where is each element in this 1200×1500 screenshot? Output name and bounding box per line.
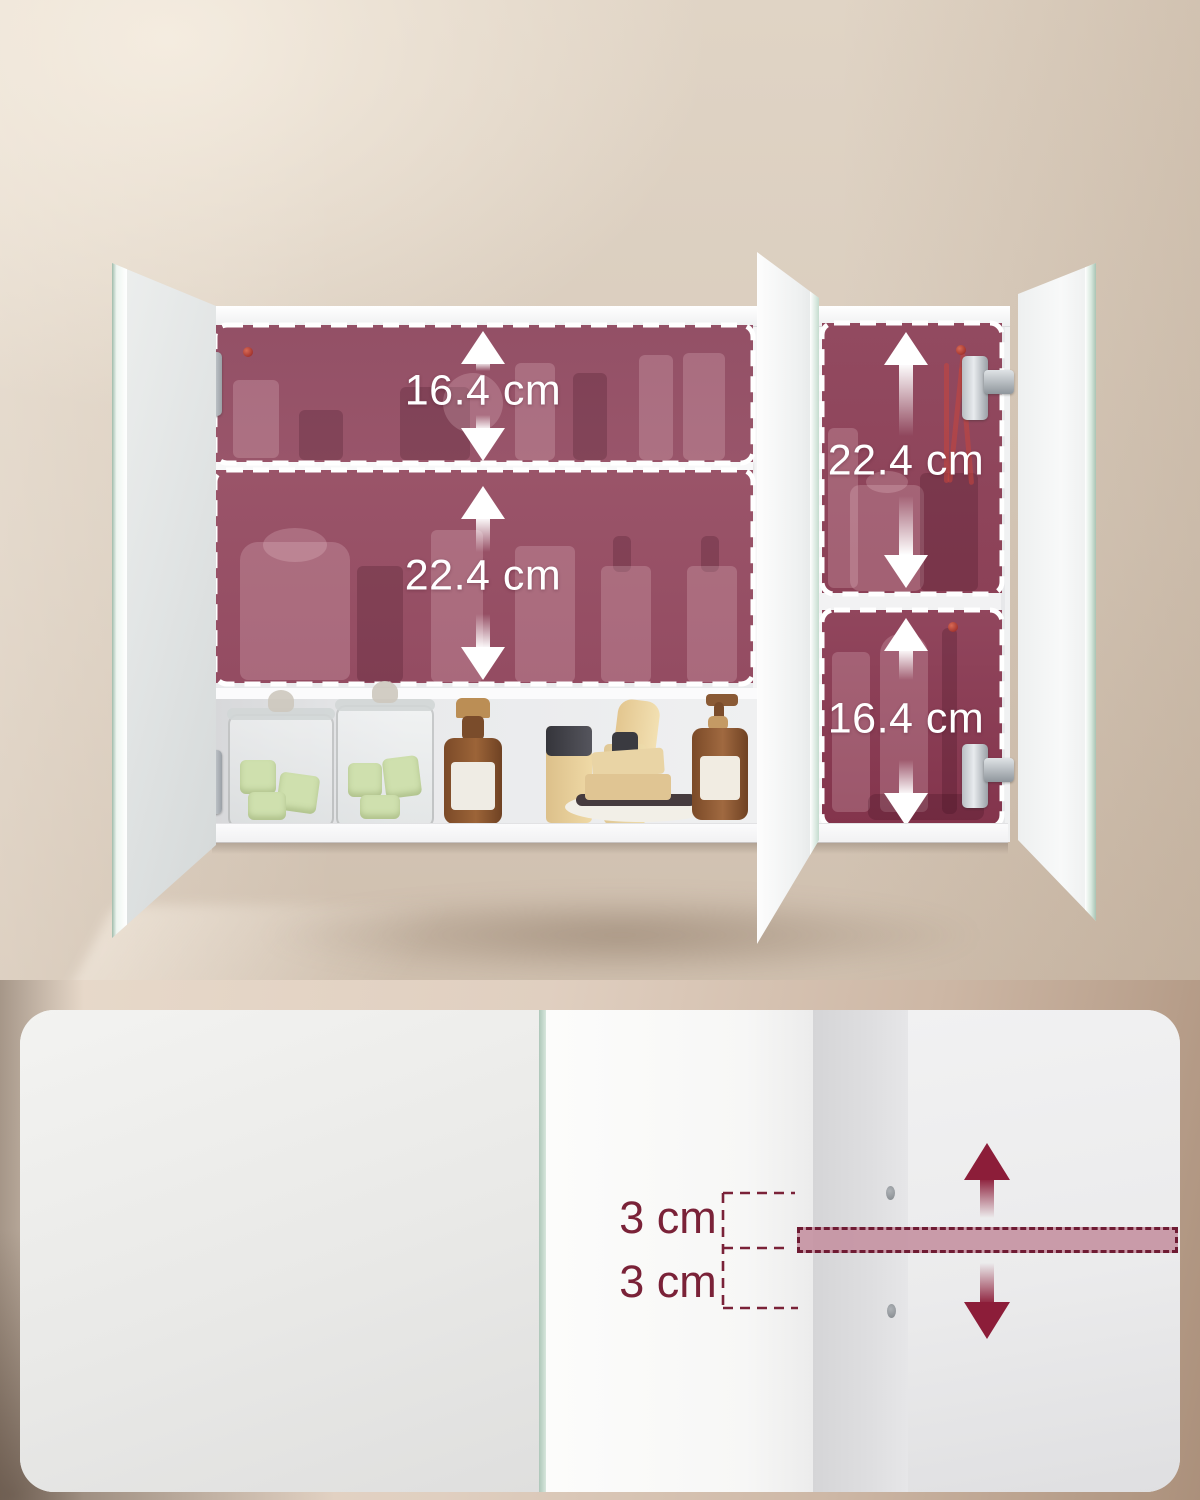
hinge-arm: [984, 758, 1014, 782]
pump-head: [456, 698, 490, 718]
spacing-label-lower: 3 cm: [619, 1256, 717, 1308]
dimension-label-main-middle: 22.4 cm: [405, 552, 561, 601]
pump-bottle-silhouette: [357, 566, 403, 682]
dimension-label-main-top: 16.4 cm: [405, 367, 561, 416]
bottle-label: [451, 762, 495, 810]
pump-bottle-silhouette: [687, 566, 737, 682]
cabinet-bottom-board: [212, 823, 1008, 843]
soap-bar: [585, 774, 671, 800]
product-infographic: 16.4 cm 22.4 cm: [0, 0, 1200, 1500]
mirror-glass-edge: [1085, 263, 1096, 921]
jar-silhouette: [299, 410, 343, 460]
cabinet-open-shelf-edge: [215, 688, 758, 699]
shelf-pin: [243, 347, 253, 357]
hinge-arm: [984, 370, 1014, 394]
cabinet-bottom-shadow: [212, 842, 1008, 854]
shelf-pin-hole-upper: [886, 1186, 895, 1200]
mirror-glass-edge: [539, 1010, 546, 1492]
mirror-glass-edge: [112, 263, 127, 938]
bottle-cap: [546, 726, 592, 756]
glass-jar: [228, 714, 334, 828]
bottle-label: [700, 756, 740, 800]
bottle-silhouette: [639, 355, 673, 460]
jar-knob: [268, 690, 294, 712]
soap-cube: [240, 760, 276, 794]
glass-jar: [336, 705, 434, 828]
hinge-bottom-right: [962, 744, 988, 808]
mirror-door-left-open: [112, 263, 216, 938]
bottle-silhouette: [233, 380, 279, 458]
shelf-pin: [948, 622, 958, 632]
mirror-door-panel-closeup: [20, 1010, 539, 1492]
soap-cube: [348, 763, 382, 797]
mirror-door-right-open: [1018, 263, 1096, 921]
bottle-neck: [462, 716, 484, 740]
soap-cube: [360, 795, 400, 819]
dimension-label-right-bottom: 16.4 cm: [828, 695, 984, 744]
soap-cube: [248, 792, 286, 820]
bottle-silhouette: [573, 373, 607, 460]
pouch-bow-silhouette: [263, 528, 327, 562]
bottle-silhouette: [683, 353, 725, 460]
dimension-label-right-top: 22.4 cm: [828, 437, 984, 486]
pouch-silhouette: [240, 542, 350, 680]
shelf-pin: [956, 345, 966, 355]
hinge-top-right: [962, 356, 988, 420]
adjustable-shelf-highlight: [797, 1227, 1178, 1253]
swab-jar-silhouette: [850, 485, 924, 591]
soap-cube: [382, 755, 423, 799]
pump-bottle-silhouette: [601, 566, 651, 682]
mirror-door-middle-open: [757, 252, 819, 944]
mirror-glass-edge: [810, 252, 819, 944]
jar-knob: [372, 681, 398, 703]
shelf-pin-hole-lower: [887, 1304, 896, 1318]
diffuser-bottle-silhouette: [920, 473, 978, 591]
cabinet-side-panel: [546, 1010, 813, 1492]
spacing-label-upper: 3 cm: [619, 1192, 717, 1244]
